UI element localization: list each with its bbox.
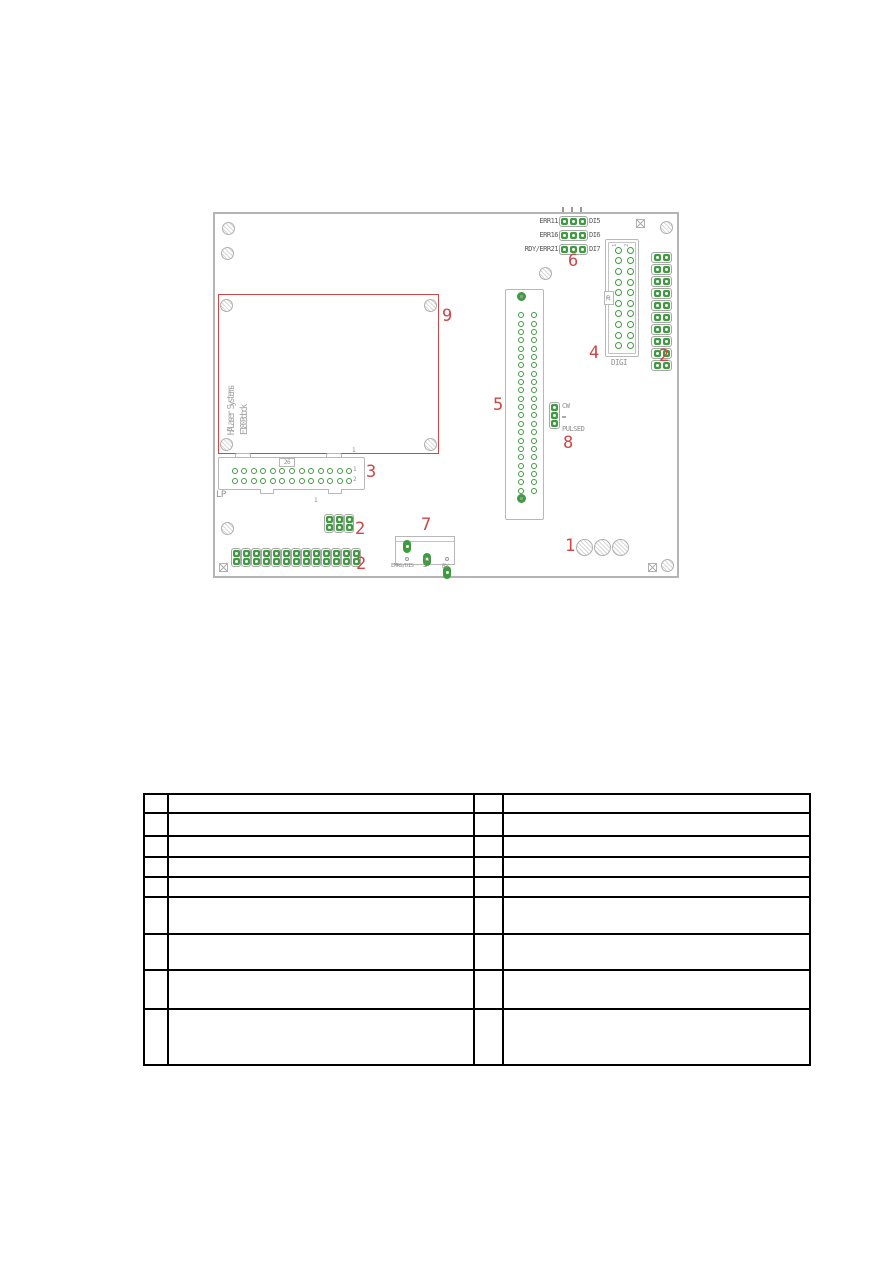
pin-hole	[531, 404, 537, 410]
mounting-hole	[660, 221, 673, 234]
pin-hole	[270, 468, 276, 474]
pin-hole	[518, 429, 524, 435]
pin-tick	[580, 207, 582, 212]
pad-pin	[253, 558, 260, 565]
pad-pin	[663, 266, 670, 273]
pad-pin	[579, 246, 586, 253]
mode-label-pulsed: PULSED	[562, 426, 584, 433]
table-cell	[168, 813, 474, 836]
pin-hole	[308, 478, 314, 484]
pin-hole	[615, 247, 622, 254]
pad-pin	[654, 338, 661, 345]
table-row	[144, 897, 810, 934]
jumper-3pin	[559, 216, 588, 227]
pin-hole	[270, 478, 276, 484]
pin-hole	[627, 247, 634, 254]
pin-hole	[531, 396, 537, 402]
table-cell	[144, 813, 168, 836]
pin-hole	[531, 337, 537, 343]
lp-row1-label: 1	[353, 467, 356, 473]
table-cell	[474, 934, 503, 970]
pin-hole	[531, 446, 537, 452]
callout-4: 4	[589, 345, 599, 362]
jumper-3x2	[324, 514, 354, 533]
pin-hole	[518, 488, 524, 494]
callout-2: 2	[355, 521, 365, 538]
table-row	[144, 794, 810, 813]
pin-hole	[531, 412, 537, 418]
table-cell	[168, 934, 474, 970]
mode-jumper	[549, 402, 560, 429]
mounting-hole	[222, 222, 235, 235]
mounting-hole	[220, 438, 233, 451]
pin-hole	[251, 478, 257, 484]
table-cell	[168, 970, 474, 1009]
table-cell	[168, 1009, 474, 1065]
pin-tick	[562, 207, 564, 212]
pin-hole	[531, 354, 537, 360]
pin-hole	[518, 321, 524, 327]
callout-5: 5	[493, 397, 503, 414]
terminal-hole	[445, 557, 449, 561]
table-row	[144, 836, 810, 857]
lp-pin-grid	[230, 466, 354, 486]
signal-label: DI7	[589, 246, 600, 253]
table-cell	[474, 897, 503, 934]
table-row	[144, 857, 810, 877]
mode-label-cw: CW	[562, 403, 569, 410]
jumper-column	[301, 548, 311, 567]
callout-3: 3	[366, 464, 376, 481]
pad-pin	[570, 232, 577, 239]
table-cell	[474, 1009, 503, 1065]
pin-hole	[518, 471, 524, 477]
pin-hole	[615, 268, 622, 275]
jumper-2pin	[651, 264, 672, 275]
pad-pin	[233, 550, 240, 557]
table-cell	[144, 794, 168, 813]
pad-pin	[663, 254, 670, 261]
connector-tab	[328, 489, 342, 494]
pin-hole	[518, 312, 524, 318]
pad-pin	[313, 550, 320, 557]
table-row	[144, 970, 810, 1009]
table-row	[144, 934, 810, 970]
pin-hole	[531, 379, 537, 385]
pin-hole	[627, 300, 634, 307]
pad-pin	[343, 550, 350, 557]
pad-pin	[326, 516, 333, 523]
table-cell	[503, 970, 810, 1009]
pcb-board-outline: 1 HALaser Systems E1803dock 9 ERR11	[213, 212, 679, 578]
terminal-label-emrg-dis: EMRG/DIS	[391, 564, 414, 570]
pin-hole	[299, 468, 305, 474]
jumper-column	[241, 548, 251, 567]
pin-hole	[518, 404, 524, 410]
pin-hole	[518, 421, 524, 427]
pin26-label: 26	[284, 460, 290, 466]
pad-circle	[594, 539, 611, 556]
pin-hole	[615, 300, 622, 307]
table-cell	[503, 857, 810, 877]
pad-header-2x13	[231, 548, 361, 567]
fiducial-xbox	[648, 563, 657, 572]
table-cell	[503, 1009, 810, 1065]
jumper-row: ERR11 DI5	[506, 214, 606, 228]
pin-hole	[615, 279, 622, 286]
pin-hole	[531, 387, 537, 393]
table-cell	[503, 877, 810, 897]
jumper-column	[271, 548, 281, 567]
table-cell	[503, 813, 810, 836]
terminal-hole	[405, 557, 409, 561]
spec-table-body	[144, 794, 810, 1065]
pin-hole	[531, 312, 537, 318]
pad-pin	[303, 558, 310, 565]
signal-label: DI5	[589, 218, 600, 225]
pad-pin	[303, 550, 310, 557]
table-cell	[144, 934, 168, 970]
mounting-hole	[424, 299, 437, 312]
pin-hole	[518, 454, 524, 460]
pad-pin	[663, 302, 670, 309]
jumper-2pin	[651, 276, 672, 287]
pin-hole	[518, 387, 524, 393]
pin-hole	[627, 279, 634, 286]
table-cell	[168, 794, 474, 813]
pin-hole	[518, 438, 524, 444]
table-cell	[144, 877, 168, 897]
table-cell	[474, 970, 503, 1009]
mounting-hole	[220, 299, 233, 312]
table-cell	[168, 857, 474, 877]
pin-hole	[531, 371, 537, 377]
jumper-2pin	[651, 288, 672, 299]
brand-text-line2: E1803dock	[240, 406, 250, 435]
pin-hole	[518, 412, 524, 418]
table-cell	[503, 794, 810, 813]
pin20-marker: 20	[604, 291, 614, 305]
pin-hole	[627, 321, 634, 328]
jumper-2pin	[651, 312, 672, 323]
pin-hole	[531, 329, 537, 335]
jumper-column	[324, 514, 334, 533]
pin-hole	[531, 346, 537, 352]
pin-hole	[337, 478, 343, 484]
table-cell	[168, 897, 474, 934]
pad-pin	[654, 314, 661, 321]
pad-circle	[612, 539, 629, 556]
jumper-column	[331, 548, 341, 567]
connector-tab	[260, 489, 274, 494]
table-row	[144, 1009, 810, 1065]
pin-hole	[279, 468, 285, 474]
table-cell	[144, 897, 168, 934]
table-cell	[503, 836, 810, 857]
pad-pin	[273, 558, 280, 565]
pin-hole	[308, 468, 314, 474]
pin-hole	[232, 468, 238, 474]
spec-table	[143, 793, 811, 1066]
lp-row2-label: 2	[353, 477, 356, 483]
fiducial-xbox	[636, 219, 645, 228]
connector-lp-label: LP	[216, 491, 226, 500]
jumper-column	[321, 548, 331, 567]
jumper-row: ERR16 DI6	[506, 228, 606, 242]
mounting-hole	[221, 522, 234, 535]
jumper-2pin	[651, 252, 672, 263]
pin-hole	[518, 354, 524, 360]
table-cell	[474, 877, 503, 897]
pin-hole	[531, 479, 537, 485]
pin-hole	[615, 321, 622, 328]
terminal-pin	[403, 540, 411, 553]
signal-label: DI6	[589, 232, 600, 239]
pad-pin	[551, 420, 558, 427]
pin-hole	[627, 289, 634, 296]
connector-digi-label: DIGI	[611, 359, 627, 367]
pin-hole	[531, 321, 537, 327]
pad-pin	[263, 550, 270, 557]
jumper-row: RDY/ERR21 DI7	[506, 242, 606, 256]
e1803dock-module-outline: HALaser Systems E1803dock	[218, 294, 439, 454]
pad-pin	[561, 232, 568, 239]
pin-hole	[518, 463, 524, 469]
tall-connector-pin-grid	[514, 311, 540, 495]
pin-hole	[289, 478, 295, 484]
table-cell	[144, 836, 168, 857]
pin1-marker-bottom: 1	[314, 498, 317, 504]
pin-hole	[627, 342, 634, 349]
pin-hole	[327, 468, 333, 474]
pad-pin	[561, 218, 568, 225]
callout-6: 6	[568, 253, 578, 270]
jumper-column	[261, 548, 271, 567]
pin-hole	[518, 337, 524, 343]
pad-pin	[663, 314, 670, 321]
pin-hole	[346, 478, 352, 484]
jumper-column	[281, 548, 291, 567]
pad-pin	[333, 558, 340, 565]
pin-hole	[241, 468, 247, 474]
pin-hole	[327, 478, 333, 484]
error-jumper-block: ERR11 DI5 ERR16 DI6 RDY/ERR21 DI7	[506, 214, 606, 256]
pin-hole	[289, 468, 295, 474]
pad-circle	[576, 539, 593, 556]
mounting-hole	[221, 247, 234, 260]
pin-hole	[518, 379, 524, 385]
pin-hole	[518, 479, 524, 485]
pin-hole	[518, 446, 524, 452]
pin-hole	[627, 257, 634, 264]
jumper-column	[251, 548, 261, 567]
pin-hole	[531, 438, 537, 444]
pin-hole	[531, 429, 537, 435]
pad-pin	[263, 558, 270, 565]
pin-hole	[260, 468, 266, 474]
pad-pin	[654, 254, 661, 261]
pin-hole	[615, 289, 622, 296]
pad-pin	[570, 218, 577, 225]
table-cell	[474, 794, 503, 813]
pin-hole	[260, 478, 266, 484]
table-cell	[168, 877, 474, 897]
callout-8: 8	[563, 435, 573, 452]
jumper-column	[341, 548, 351, 567]
table-row	[144, 877, 810, 897]
jumper-column	[231, 548, 241, 567]
pad-pin	[579, 232, 586, 239]
table-cell	[168, 836, 474, 857]
table-cell	[474, 836, 503, 857]
pin1-marker-top: 1	[352, 448, 355, 454]
pad-pin	[551, 404, 558, 411]
mounting-hole	[661, 559, 674, 572]
pad-pin	[293, 550, 300, 557]
pad-pin	[326, 524, 333, 531]
pin-hole	[531, 362, 537, 368]
ground-symbol: ⊥	[423, 562, 427, 569]
mounting-hole	[539, 267, 552, 280]
callout-1: 1	[565, 538, 575, 555]
pin-hole	[318, 478, 324, 484]
pad-pin	[293, 558, 300, 565]
pin-hole	[337, 468, 343, 474]
pin-hole	[627, 310, 634, 317]
pin-hole	[615, 332, 622, 339]
pad-pin	[336, 524, 343, 531]
fiducial-xbox	[219, 563, 228, 572]
pad-pin	[654, 326, 661, 333]
pad-pin	[663, 338, 670, 345]
pad-pin	[336, 516, 343, 523]
document-page: 1 HALaser Systems E1803dock 9 ERR11	[0, 0, 893, 1263]
solder-pads-group	[576, 539, 629, 556]
pin-hole	[615, 257, 622, 264]
table-cell	[144, 857, 168, 877]
pad-pin	[243, 558, 250, 565]
callout-9: 9	[442, 308, 452, 325]
jumper-column	[291, 548, 301, 567]
table-row	[144, 813, 810, 836]
signal-label: RDY/ERR21	[506, 246, 558, 253]
pin-hole	[346, 468, 352, 474]
callout-7: 7	[421, 517, 431, 534]
jumper-column	[334, 514, 344, 533]
mounting-hole	[424, 438, 437, 451]
pin-hole	[627, 332, 634, 339]
pin-hole	[615, 342, 622, 349]
terminal-label-bv: BV	[442, 564, 448, 570]
pad-pin	[243, 550, 250, 557]
digi-pin-grid	[612, 245, 636, 351]
pin-hole	[627, 268, 634, 275]
table-cell	[503, 897, 810, 934]
pin-hole	[615, 310, 622, 317]
signal-label: ERR16	[506, 232, 558, 239]
pad-pin	[346, 516, 353, 523]
jumper-column	[344, 514, 354, 533]
pad-pin	[551, 412, 558, 419]
pin-hole	[518, 371, 524, 377]
pad-pin	[273, 550, 280, 557]
pad-pin	[343, 558, 350, 565]
table-cell	[474, 813, 503, 836]
pad-pin	[253, 550, 260, 557]
mode-mid-mark	[562, 416, 566, 418]
pin-tick	[571, 207, 573, 212]
pad-pin	[663, 290, 670, 297]
table-cell	[144, 1009, 168, 1065]
pad-pin	[654, 278, 661, 285]
pad-pin	[313, 558, 320, 565]
screw-hole	[517, 292, 526, 301]
pad-pin	[663, 278, 670, 285]
table-cell	[144, 970, 168, 1009]
pin-hole	[531, 463, 537, 469]
pin-hole	[241, 478, 247, 484]
table-cell	[503, 934, 810, 970]
brand-text-line1: HALaser Systems	[227, 387, 237, 435]
pin-hole	[251, 468, 257, 474]
pad-pin	[346, 524, 353, 531]
pin-hole	[232, 478, 238, 484]
pad-pin	[283, 550, 290, 557]
jumper-2pin	[651, 300, 672, 311]
signal-label: ERR11	[506, 218, 558, 225]
pin-hole	[531, 488, 537, 494]
pin-hole	[531, 471, 537, 477]
silkscreen-brand: HALaser Systems E1803dock	[227, 387, 251, 435]
pin-hole	[531, 454, 537, 460]
pin-hole	[531, 421, 537, 427]
jumper-2pin	[651, 324, 672, 335]
pad-pin	[323, 558, 330, 565]
pad-pin	[654, 290, 661, 297]
pin-hole	[518, 329, 524, 335]
pin-hole	[299, 478, 305, 484]
pin-hole	[518, 362, 524, 368]
screw-hole	[517, 494, 526, 503]
pin-hole	[279, 478, 285, 484]
callout-2: 2	[356, 556, 366, 573]
jumper-3pin	[559, 230, 588, 241]
pin-hole	[318, 468, 324, 474]
pad-pin	[654, 266, 661, 273]
pin-hole	[518, 346, 524, 352]
pad-pin	[283, 558, 290, 565]
pin-hole	[518, 396, 524, 402]
pin20-label: 20	[606, 296, 612, 301]
callout-2: 2	[659, 348, 669, 365]
pad-pin	[663, 326, 670, 333]
pad-pin	[579, 218, 586, 225]
pad-pin	[654, 302, 661, 309]
pad-pin	[333, 550, 340, 557]
jumper-column	[311, 548, 321, 567]
pad-pin	[233, 558, 240, 565]
table-cell	[474, 857, 503, 877]
pad-pin	[323, 550, 330, 557]
